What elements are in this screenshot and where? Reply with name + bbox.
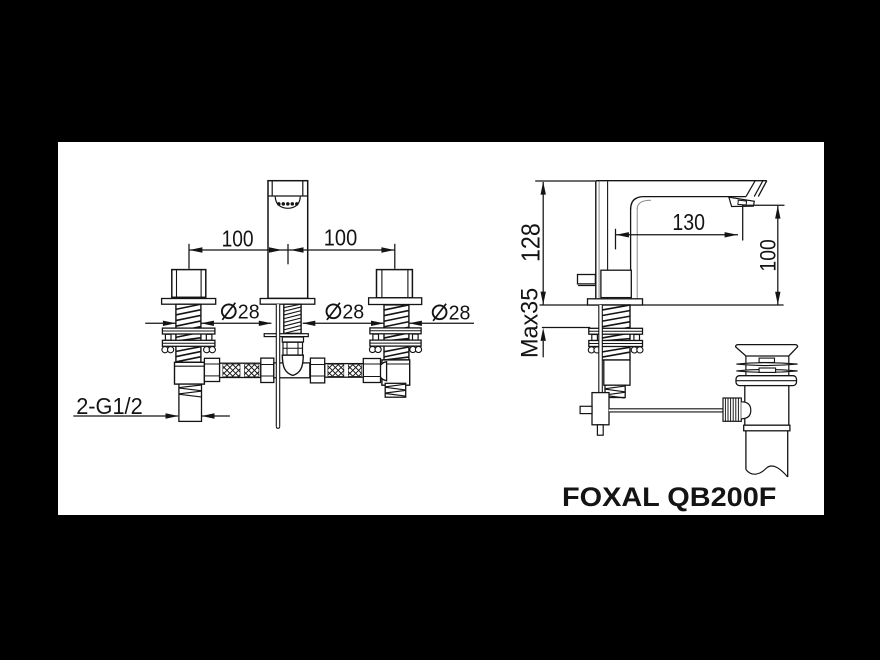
- svg-text:100: 100: [324, 224, 357, 250]
- svg-text:130: 130: [672, 209, 705, 235]
- svg-text:Max35: Max35: [516, 288, 543, 358]
- svg-text:100: 100: [222, 226, 254, 252]
- svg-text:28: 28: [449, 303, 471, 325]
- svg-text:128: 128: [518, 223, 546, 262]
- svg-text:28: 28: [342, 302, 364, 324]
- svg-text:28: 28: [238, 302, 260, 324]
- svg-text:100: 100: [755, 239, 780, 271]
- svg-text:FOXAL QB200F: FOXAL QB200F: [562, 482, 776, 512]
- svg-text:2-G1/2: 2-G1/2: [76, 393, 143, 419]
